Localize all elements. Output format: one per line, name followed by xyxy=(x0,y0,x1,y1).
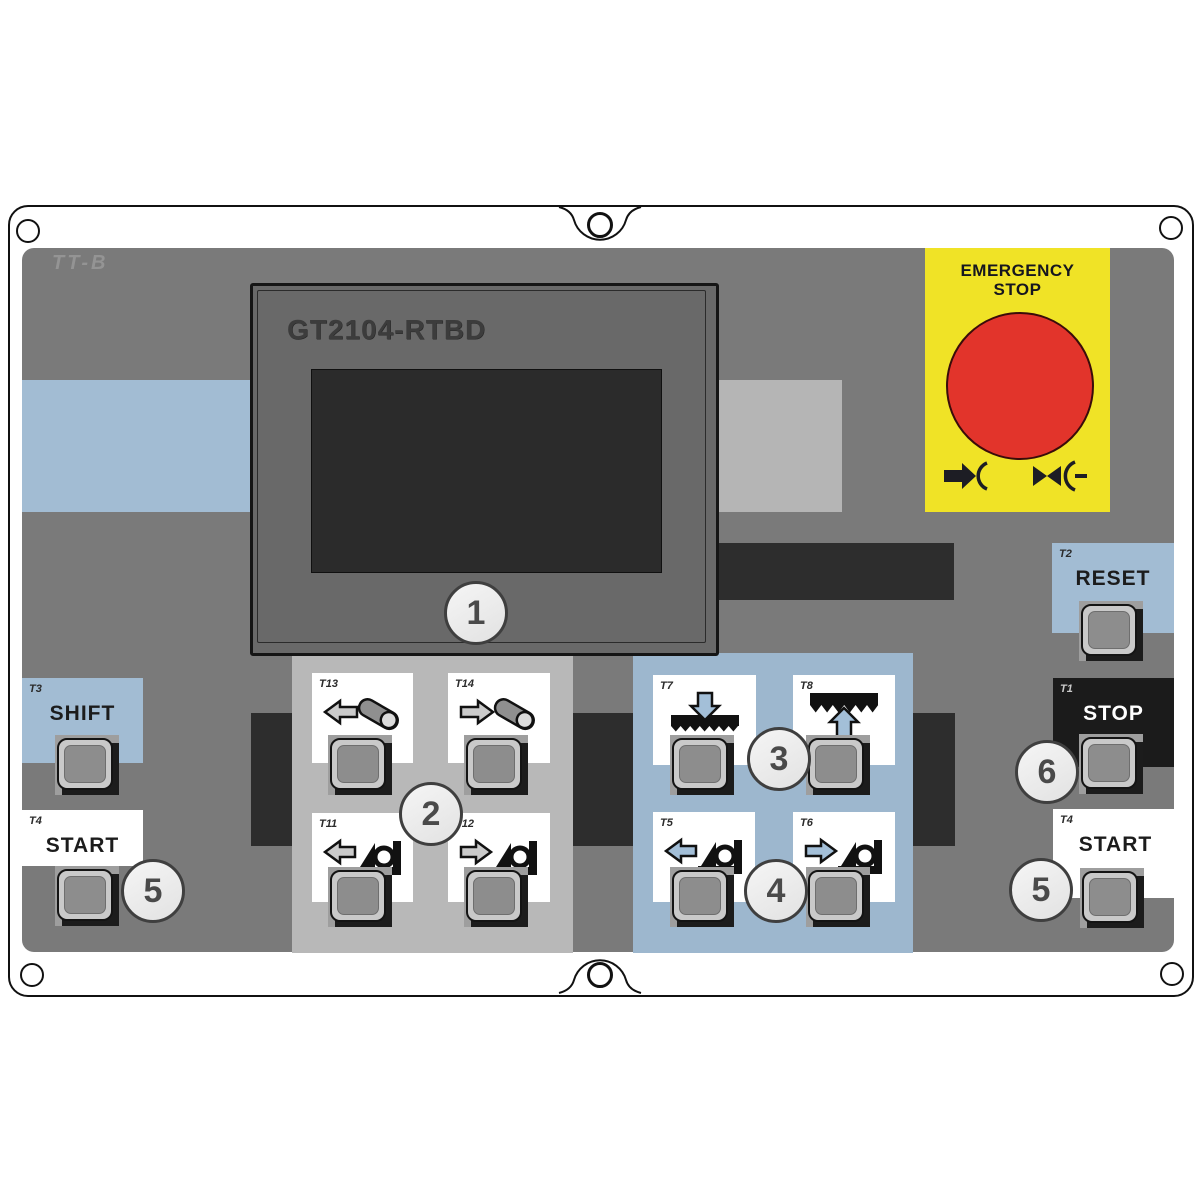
callout-1: 1 xyxy=(444,581,508,645)
screw-hole-bottom-right xyxy=(1160,962,1184,986)
key-tag: T4 xyxy=(29,815,42,827)
key-tag: T4 xyxy=(1060,814,1073,826)
key-button-t11[interactable] xyxy=(328,867,392,927)
blade-down-icon xyxy=(665,691,745,739)
callout-4: 4 xyxy=(744,859,808,923)
key-tag: T13 xyxy=(319,678,338,690)
emergency-stop-button[interactable] xyxy=(946,312,1094,460)
callout-3: 3 xyxy=(747,727,811,791)
callout-5-right: 5 xyxy=(1009,858,1073,922)
center-gray-rect xyxy=(713,380,842,512)
key-button-t6[interactable] xyxy=(806,867,870,927)
start-right-button[interactable] xyxy=(1080,868,1144,928)
start-left-key-field: T4 START xyxy=(22,810,143,866)
key-button-t12[interactable] xyxy=(464,867,528,927)
key-tag: T11 xyxy=(319,818,337,830)
callout-2: 2 xyxy=(399,782,463,846)
hmi-touchscreen[interactable] xyxy=(311,369,662,573)
callout-5-left: 5 xyxy=(121,859,185,923)
stop-button[interactable] xyxy=(1079,734,1143,794)
blade-up-icon xyxy=(804,689,884,739)
key-button-t5[interactable] xyxy=(670,867,734,927)
shift-button[interactable] xyxy=(55,735,119,795)
key-tag: T5 xyxy=(660,817,673,829)
brand-label: TT-B xyxy=(52,252,108,275)
top-mount-cutout-icon xyxy=(555,204,645,250)
emergency-stop-field: EMERGENCY STOP xyxy=(925,248,1110,512)
screw-hole-top-left xyxy=(16,219,40,243)
key-button-t7[interactable] xyxy=(670,735,734,795)
hmi-model-label: GT2104-RTBD xyxy=(287,314,486,346)
reset-button[interactable] xyxy=(1079,601,1143,661)
screw-hole-bottom-left xyxy=(20,963,44,987)
key-tag: T14 xyxy=(455,678,474,690)
emergency-stop-label: EMERGENCY STOP xyxy=(925,248,1110,299)
key-button-t13[interactable] xyxy=(328,735,392,795)
callout-6: 6 xyxy=(1015,740,1079,804)
pull-to-release-icon xyxy=(1029,458,1089,494)
bottom-mount-cutout-icon xyxy=(555,950,645,996)
upper-dark-band xyxy=(700,543,954,600)
screw-hole-top-right xyxy=(1159,216,1183,240)
key-tag: T1 xyxy=(1060,683,1073,695)
key-tag: T2 xyxy=(1059,548,1072,560)
push-to-stop-icon xyxy=(942,458,994,494)
key-tag: T6 xyxy=(800,817,813,829)
start-left-button[interactable] xyxy=(55,866,119,926)
key-tag: T3 xyxy=(29,683,42,695)
membrane-panel-drawing: TT-B GT2104-RTBD EMERGENCY STOP T3 S xyxy=(0,0,1200,1200)
key-button-t8[interactable] xyxy=(806,735,870,795)
left-blue-stripe xyxy=(22,380,250,512)
key-button-t14[interactable] xyxy=(464,735,528,795)
